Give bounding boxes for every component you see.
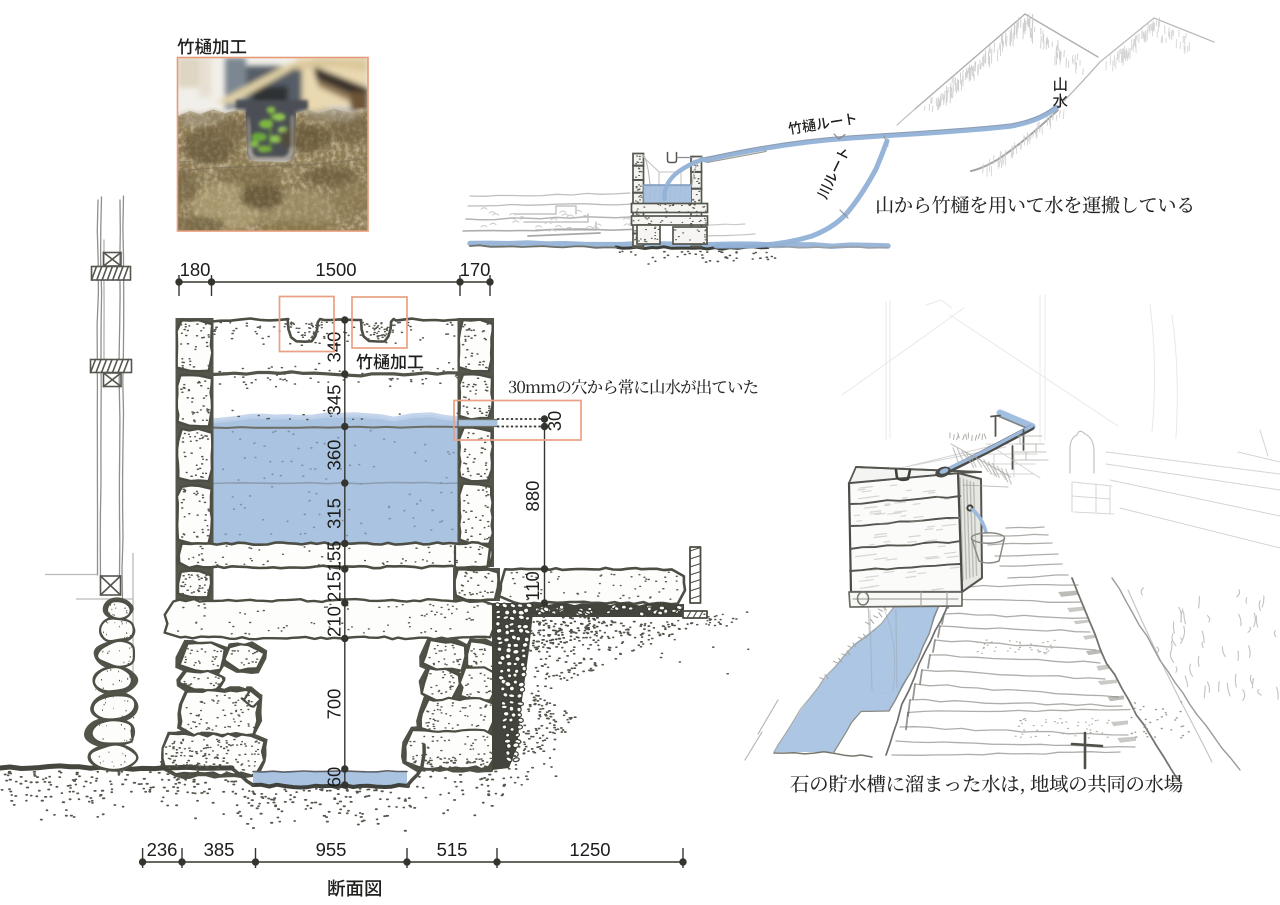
svg-text:60: 60 [324, 767, 345, 788]
svg-text:385: 385 [204, 839, 235, 860]
svg-text:155: 155 [324, 541, 345, 572]
svg-text:345: 345 [324, 385, 345, 416]
svg-text:1250: 1250 [569, 839, 610, 860]
svg-text:236: 236 [147, 839, 178, 860]
svg-text:110: 110 [522, 571, 543, 601]
svg-text:315: 315 [324, 498, 345, 529]
svg-text:1500: 1500 [315, 259, 356, 280]
svg-text:170: 170 [460, 259, 491, 280]
svg-text:210: 210 [324, 606, 345, 637]
svg-text:880: 880 [522, 481, 543, 512]
svg-text:180: 180 [180, 259, 211, 280]
svg-text:955: 955 [316, 839, 347, 860]
svg-text:360: 360 [324, 440, 345, 471]
svg-text:515: 515 [437, 839, 468, 860]
svg-text:700: 700 [324, 689, 345, 720]
svg-text:30: 30 [544, 411, 565, 432]
svg-text:215: 215 [324, 571, 345, 602]
